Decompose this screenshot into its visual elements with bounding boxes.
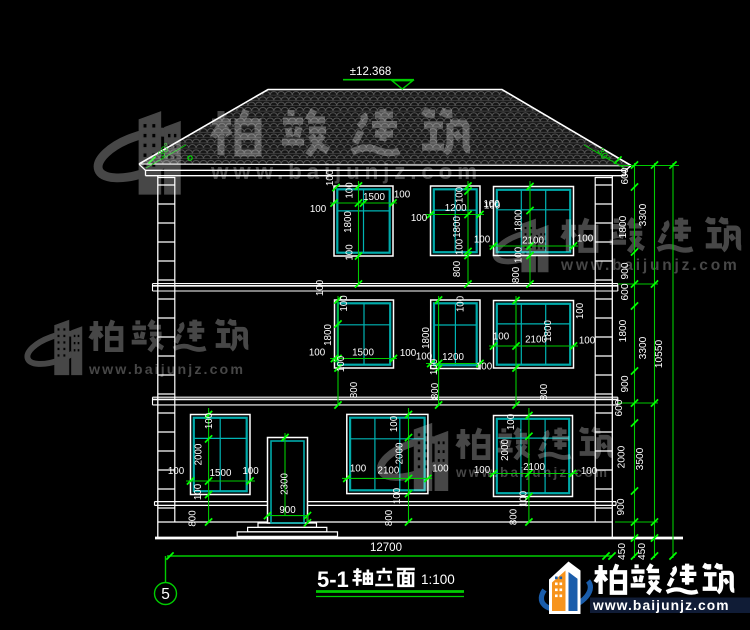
svg-text:800: 800 (384, 509, 395, 526)
svg-text:800: 800 (349, 381, 360, 398)
svg-text:100: 100 (168, 466, 185, 477)
svg-text:100: 100 (506, 413, 517, 430)
svg-text:900: 900 (279, 505, 296, 516)
svg-text:100: 100 (242, 466, 259, 477)
svg-text:1800: 1800 (343, 211, 354, 233)
svg-text:100: 100 (581, 466, 598, 477)
svg-text:100: 100 (456, 295, 467, 312)
svg-text:3500: 3500 (635, 447, 646, 470)
svg-text:100: 100 (394, 190, 411, 201)
svg-text:1200: 1200 (442, 352, 464, 363)
svg-text:3300: 3300 (638, 336, 649, 359)
svg-text:100: 100 (336, 355, 347, 372)
svg-text:www.baijunjz.com: www.baijunjz.com (88, 362, 245, 378)
svg-text:2300: 2300 (280, 473, 291, 495)
svg-text:800: 800 (188, 510, 199, 527)
svg-text:www.baijunjz.com: www.baijunjz.com (592, 598, 730, 613)
svg-text:100: 100 (474, 465, 491, 476)
svg-text:900: 900 (620, 375, 631, 392)
svg-text:www.baijunjz.com: www.baijunjz.com (560, 257, 740, 274)
svg-text:100: 100 (345, 182, 356, 199)
svg-text:800: 800 (430, 382, 441, 399)
svg-text:1800: 1800 (543, 320, 554, 342)
svg-text:100: 100 (204, 412, 215, 429)
svg-text:100: 100 (392, 487, 403, 504)
svg-text:100: 100 (432, 464, 449, 475)
svg-text:100: 100 (400, 348, 417, 359)
svg-text:100: 100 (474, 235, 491, 246)
svg-text:12700: 12700 (370, 542, 402, 554)
svg-text:100: 100 (389, 415, 400, 432)
svg-text:100: 100 (514, 246, 525, 263)
svg-text:1800: 1800 (618, 215, 629, 238)
svg-text:100: 100 (454, 186, 465, 203)
svg-text:800: 800 (452, 260, 463, 277)
svg-text:100: 100 (483, 199, 500, 210)
svg-text:100: 100 (411, 213, 428, 224)
svg-text:100: 100 (193, 483, 204, 500)
svg-text:900: 900 (620, 262, 631, 279)
svg-text:±12.368: ±12.368 (350, 66, 392, 78)
svg-text:800: 800 (539, 383, 550, 400)
svg-text:100: 100 (519, 490, 530, 507)
svg-text:2000: 2000 (395, 442, 406, 464)
svg-text:2000: 2000 (500, 439, 511, 461)
svg-text:100: 100 (310, 204, 327, 215)
svg-text:100: 100 (315, 279, 326, 296)
svg-text:1500: 1500 (352, 348, 374, 359)
svg-text:1800: 1800 (421, 327, 432, 349)
svg-text:5-1: 5-1 (317, 567, 349, 592)
svg-text:www.baijunjz.com: www.baijunjz.com (210, 159, 482, 184)
svg-text:1800: 1800 (452, 216, 463, 238)
svg-text:100: 100 (350, 464, 367, 475)
svg-text:900: 900 (616, 498, 627, 515)
svg-text:1800: 1800 (514, 209, 525, 231)
svg-text:100: 100 (577, 234, 594, 245)
svg-text:1:100: 1:100 (421, 572, 455, 587)
svg-text:1500: 1500 (210, 468, 232, 479)
svg-text:1500: 1500 (363, 192, 385, 203)
svg-text:1200: 1200 (445, 203, 467, 214)
svg-text:100: 100 (493, 332, 510, 343)
svg-text:3300: 3300 (638, 203, 649, 226)
svg-text:100: 100 (429, 358, 440, 375)
svg-text:450: 450 (617, 543, 628, 560)
svg-text:100: 100 (339, 295, 350, 312)
svg-text:800: 800 (509, 508, 520, 525)
svg-text:5: 5 (161, 586, 170, 603)
svg-text:2100: 2100 (523, 462, 545, 473)
svg-text:100: 100 (575, 302, 586, 319)
svg-text:100: 100 (309, 348, 326, 359)
svg-text:450: 450 (637, 543, 648, 560)
svg-text:800: 800 (511, 266, 522, 283)
svg-text:2100: 2100 (522, 236, 544, 247)
svg-text:600: 600 (614, 399, 625, 416)
svg-text:100: 100 (345, 244, 356, 261)
svg-text:100: 100 (325, 169, 336, 186)
svg-text:600: 600 (620, 167, 631, 184)
svg-text:2000: 2000 (617, 445, 628, 468)
svg-text:100: 100 (476, 362, 493, 373)
svg-text:100: 100 (579, 336, 596, 347)
svg-text:2000: 2000 (194, 443, 205, 465)
svg-text:100: 100 (454, 238, 465, 255)
svg-text:1800: 1800 (618, 319, 629, 342)
svg-text:600: 600 (620, 283, 631, 300)
svg-text:1800: 1800 (323, 324, 334, 346)
svg-text:10550: 10550 (654, 340, 665, 369)
svg-text:2100: 2100 (378, 466, 400, 477)
